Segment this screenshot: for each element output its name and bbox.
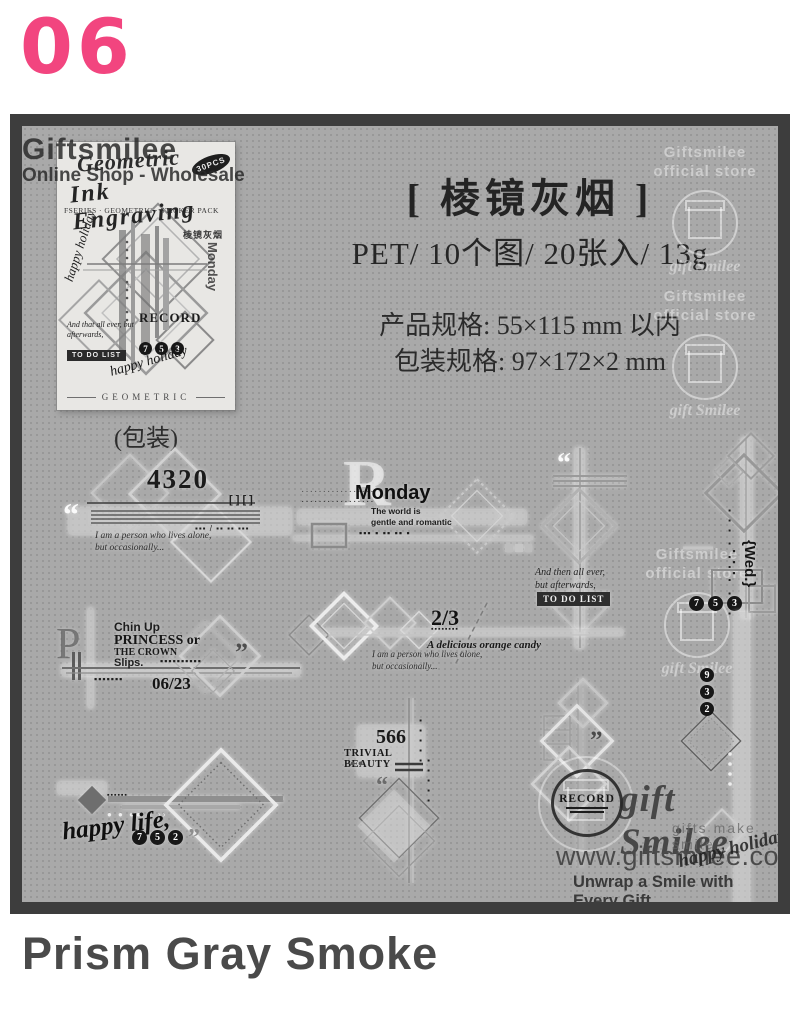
digit-badge: 5 bbox=[150, 830, 165, 845]
sticker-beauty-dots: ● ● bbox=[350, 758, 363, 768]
sticker-chinup-quote: ” bbox=[235, 640, 248, 666]
sub-line: The world is bbox=[371, 506, 452, 517]
sticker-4320-quote: “ bbox=[63, 498, 79, 530]
sub-line: gentle and romantic bbox=[371, 517, 452, 528]
gift-logo-icon bbox=[672, 190, 738, 256]
sticker-wed-label: {Wed.} bbox=[741, 540, 758, 587]
sticker-4320-number: 4320 bbox=[147, 464, 209, 495]
brand-tagline: Unwrap a Smile with Every Gift bbox=[573, 873, 778, 911]
sticker-happylife-digits: 7 5 2 bbox=[132, 830, 183, 845]
store-watermark-tile: Giftsmilee official store gift Smilee bbox=[630, 144, 780, 276]
sticker-twothirds-script: I am a person who lives alone, but occas… bbox=[372, 649, 482, 672]
sticker-monday-dots: ▪▪▪ ▪ ▪▪ ▪▪ ▪ bbox=[359, 528, 411, 538]
sticker-monday-sub: The world is gentle and romantic bbox=[371, 506, 452, 527]
package-script-note: And that all ever, but afterwards, bbox=[67, 320, 145, 341]
sticker-wed-digits: 7 5 3 bbox=[689, 596, 742, 611]
digit-badge: 3 bbox=[700, 685, 714, 699]
sticker-chinup-line1: Chin Up bbox=[114, 620, 160, 634]
store-watermark-line1: Giftsmilee bbox=[664, 288, 747, 305]
script-line: And then all ever, bbox=[535, 566, 605, 579]
sticker-beauty-number: 566 bbox=[376, 726, 406, 749]
shop-watermark: Giftsmilee Online Shop - Wholesale bbox=[22, 134, 245, 185]
sticker-monday: R ················· ················· Mo… bbox=[293, 452, 533, 567]
script-line: I am a person who lives alone, bbox=[95, 530, 211, 542]
digit-badge: 2 bbox=[168, 830, 183, 845]
package-todo-label: TO DO LIST bbox=[67, 350, 126, 361]
record-stamp-text: RECORD bbox=[559, 793, 615, 805]
script-line: but occasionally... bbox=[372, 661, 482, 673]
sticker-happylife-dots: ▪▪▪▪▪▪ bbox=[107, 792, 128, 799]
script-line: but afterwards, bbox=[535, 579, 605, 592]
sticker-beauty-quote: “ bbox=[376, 774, 388, 798]
sticker-todo-quote: “ bbox=[557, 450, 571, 478]
sticker-twothirds-blocks: ▪▪▪▪▪▪▪▪ bbox=[431, 626, 459, 633]
sticker-wed-strip: ▪▪▪ ▪ ▪▪ ▪ ▪▪▪ {Wed.} ▪▪▪ 7 5 3 bbox=[683, 438, 790, 618]
sticker-4320-script: I am a person who lives alone, but occas… bbox=[95, 530, 211, 555]
sticker-wed-squares: ▪▪▪ bbox=[729, 546, 739, 579]
sticker-4320-brackets: [ ] [ ] bbox=[229, 494, 253, 506]
sticker-chain-quote: ” bbox=[590, 728, 603, 753]
script-line: but occasionally... bbox=[95, 542, 211, 554]
digit-badge: 3 bbox=[727, 596, 742, 611]
package-footer: GEOMETRIC bbox=[57, 392, 235, 402]
sticker-monday-title: Monday bbox=[355, 482, 431, 505]
store-watermark-line2: official store bbox=[653, 163, 756, 180]
package-footer-text: GEOMETRIC bbox=[102, 392, 191, 402]
store-watermark-logo: gift Smilee bbox=[630, 258, 780, 276]
product-name-label: Prism Gray Smoke bbox=[22, 928, 438, 980]
gift-logo-icon bbox=[672, 334, 738, 400]
digit-badge: 7 bbox=[132, 830, 147, 845]
sticker-chinup-line4: Slips. bbox=[114, 657, 143, 669]
shop-watermark-sub: Online Shop - Wholesale bbox=[22, 166, 245, 186]
sticker-4320: 4320 [ ] [ ] “ ▪▪▪ / ▪▪ ▪▪ ▪▪▪ I am a pe… bbox=[55, 452, 305, 570]
page-index-number: 06 bbox=[20, 2, 134, 91]
sticker-932-digits: 9 3 2 bbox=[700, 668, 714, 716]
store-watermark-logo: gift Smilee bbox=[630, 402, 780, 420]
digit-badge: 5 bbox=[708, 596, 723, 611]
sticker-todo-script: And then all ever, but afterwards, bbox=[535, 566, 605, 592]
digit-badge: 9 bbox=[700, 668, 714, 682]
sticker-twothirds: 2/3 ▪▪▪▪▪▪▪▪ A delicious orange candy I … bbox=[283, 593, 658, 681]
record-stamp: RECORD bbox=[551, 769, 623, 837]
digit-badge: 2 bbox=[700, 702, 714, 716]
sticker-chinup-dots1: ▪▪▪▪▪▪▪▪▪▪ bbox=[160, 656, 202, 666]
package-record-text: RECORD bbox=[139, 310, 201, 326]
sticker-chinup: P Chin Up PRINCESS or THE CROWN Slips. ▪… bbox=[52, 608, 307, 708]
sticker-beauty: ▪▪▪▪▪ ▪▪▪▪▪ 566 TRIVIAL BEAUTY ● ● “ bbox=[328, 698, 440, 883]
store-watermark-line1: Giftsmilee bbox=[664, 144, 747, 161]
store-watermark-line2: official store bbox=[653, 307, 756, 324]
package-side-text: Monday bbox=[205, 242, 220, 291]
store-watermark-tile: Giftsmilee official store gift Smilee bbox=[630, 288, 780, 420]
package-caption: (包装) bbox=[57, 418, 235, 453]
sticker-happylife-quote: ” bbox=[188, 826, 200, 850]
product-panel: Giftsmilee Online Shop - Wholesale Gifts… bbox=[10, 114, 790, 914]
shop-watermark-name: Giftsmilee bbox=[22, 134, 245, 166]
sticker-chinup-date: 06/23 bbox=[152, 674, 191, 694]
script-line: I am a person who lives alone, bbox=[372, 649, 482, 661]
package-cn-name: 棱镜灰烟 bbox=[183, 228, 223, 241]
sticker-happylife: ▪▪▪▪▪▪ ● ● ●● ● ›› happy life, 7 5 2 ” bbox=[52, 748, 337, 888]
digit-badge: 7 bbox=[689, 596, 704, 611]
sticker-chinup-dots2: ▪▪▪▪▪▪▪ bbox=[94, 674, 123, 684]
